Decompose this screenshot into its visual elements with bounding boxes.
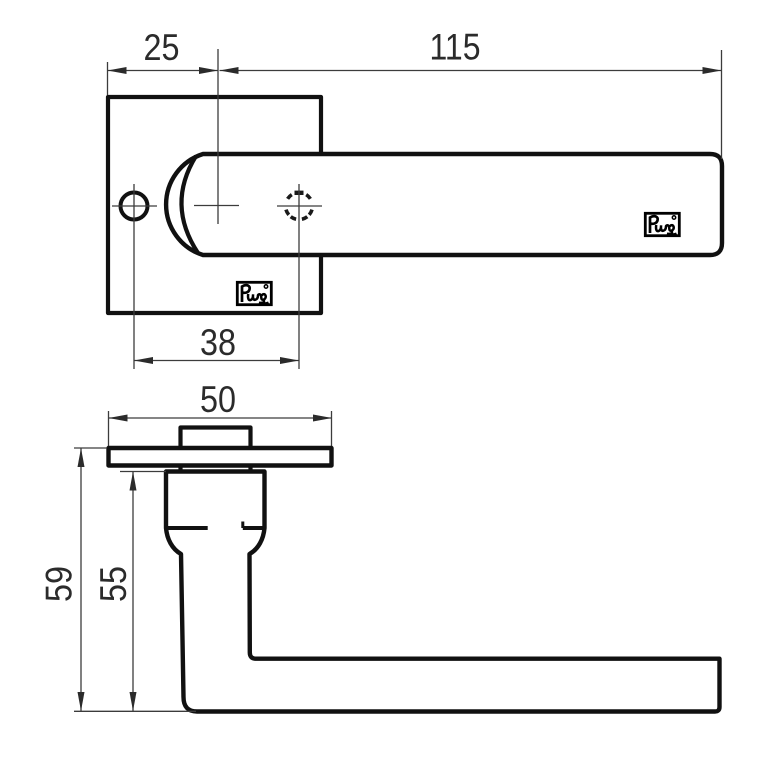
svg-text:38: 38 bbox=[200, 322, 236, 363]
svg-text:59: 59 bbox=[39, 566, 80, 602]
svg-text:55: 55 bbox=[93, 566, 134, 602]
svg-text:50: 50 bbox=[200, 379, 236, 420]
svg-text:25: 25 bbox=[144, 27, 180, 68]
svg-text:115: 115 bbox=[430, 27, 481, 68]
